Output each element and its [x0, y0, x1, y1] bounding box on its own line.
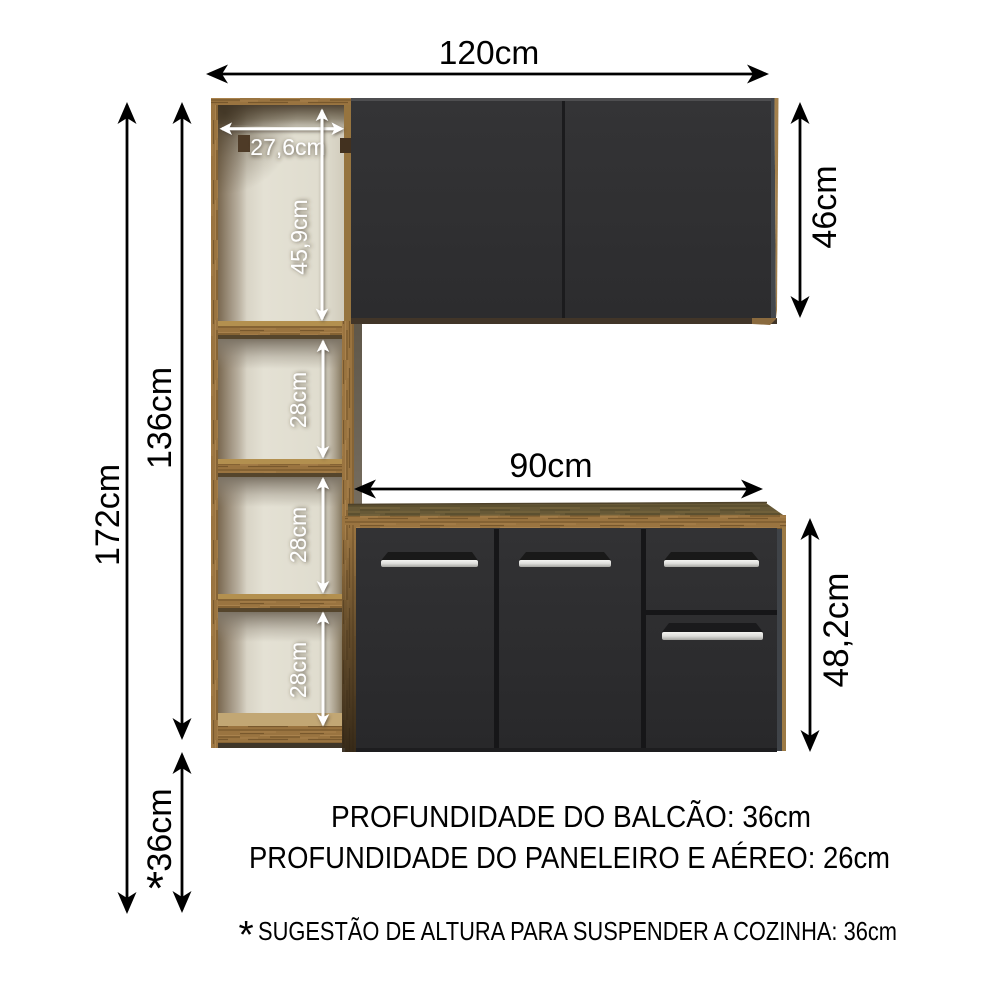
- svg-text:46cm: 46cm: [806, 165, 844, 248]
- svg-text:120cm: 120cm: [439, 35, 540, 72]
- svg-text:36cm: 36cm: [141, 788, 179, 871]
- svg-text:*: *: [146, 862, 164, 914]
- svg-text:27,6cm: 27,6cm: [250, 134, 325, 160]
- svg-text:28cm: 28cm: [285, 507, 311, 563]
- svg-text:SUGESTÃO DE ALTURA PARA SUSPEN: SUGESTÃO DE ALTURA PARA SUSPENDER A COZI…: [258, 916, 897, 946]
- svg-text:28cm: 28cm: [285, 372, 311, 428]
- svg-text:*: *: [239, 914, 254, 957]
- svg-text:172cm: 172cm: [89, 464, 127, 566]
- svg-text:45,9cm: 45,9cm: [286, 199, 312, 274]
- svg-text:PROFUNDIDADE DO BALCÃO: 36cm: PROFUNDIDADE DO BALCÃO: 36cm: [331, 799, 811, 834]
- svg-text:48,2cm: 48,2cm: [817, 573, 856, 688]
- svg-text:136cm: 136cm: [141, 367, 179, 469]
- svg-text:28cm: 28cm: [285, 642, 311, 698]
- svg-text:90cm: 90cm: [509, 447, 592, 485]
- svg-text:PROFUNDIDADE DO PANELEIRO E AÉ: PROFUNDIDADE DO PANELEIRO E AÉREO: 26cm: [249, 840, 890, 875]
